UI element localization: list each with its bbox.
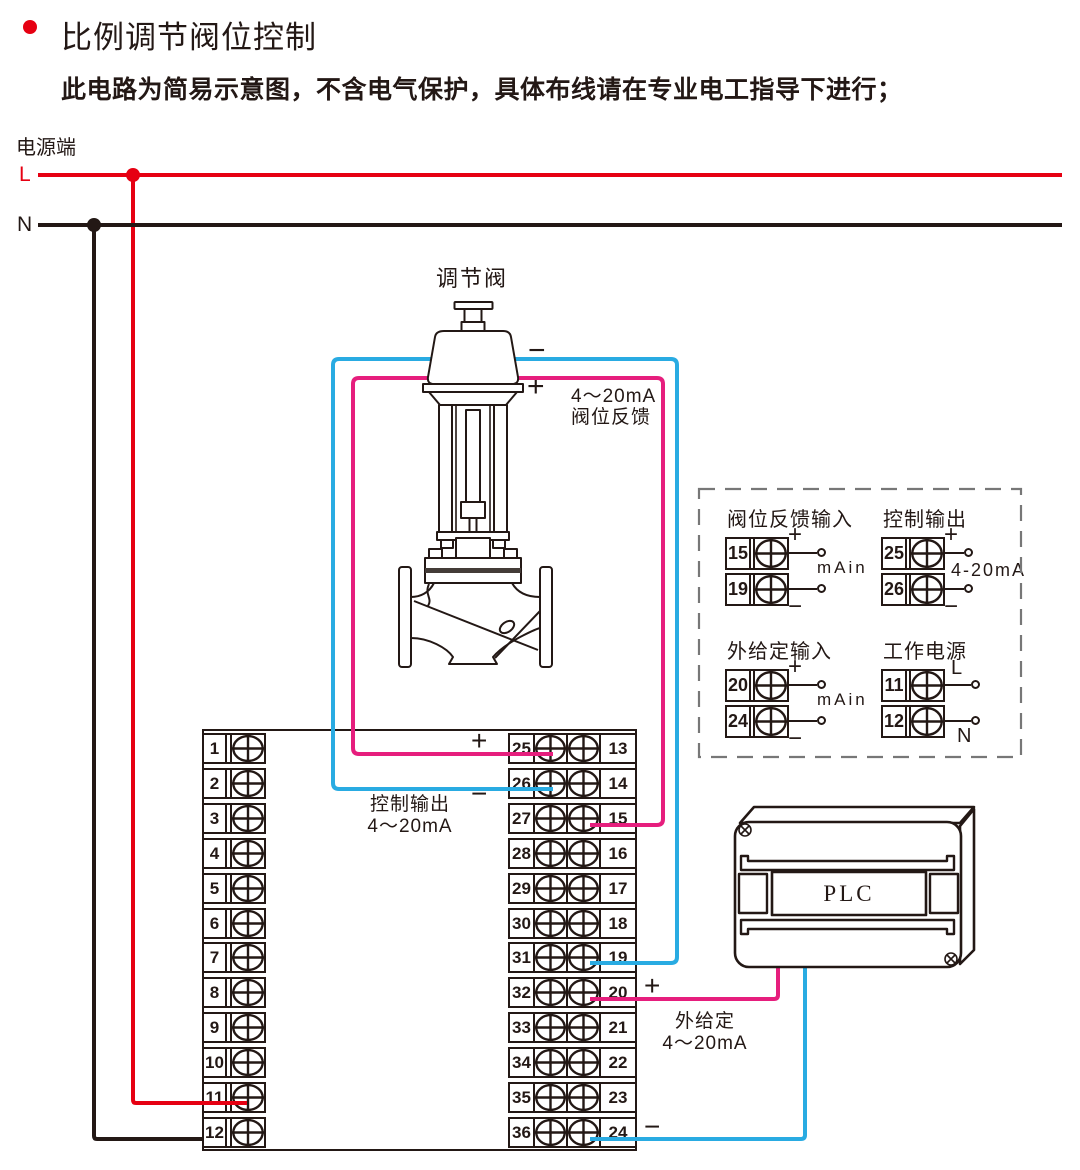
legend-terminal-row: 19 [725, 573, 789, 606]
terminal-number: 15 [601, 805, 635, 832]
legend-terminal-row: 25 [881, 537, 945, 570]
middle-terminal-row: 2513 [508, 733, 637, 764]
screw-terminal-icon [535, 805, 566, 832]
terminal-number: 36 [510, 1119, 535, 1146]
live-junction-dot [126, 168, 140, 182]
valve-feedback-text: 阀位反馈 [571, 407, 656, 428]
legend-sign: − [944, 595, 958, 619]
legend-range-label: mAin [817, 558, 868, 578]
left-terminal-row: 8 [202, 977, 266, 1008]
screw-terminal [568, 735, 601, 762]
valve-plus-sign: + [527, 372, 545, 402]
terminal-number: 25 [510, 735, 535, 762]
screw-icon [945, 953, 957, 965]
left-terminal-row: 6 [202, 908, 266, 939]
legend-terminal-row: 12 [881, 705, 945, 738]
screw-terminal [232, 875, 264, 902]
valve-flange-icon [399, 567, 411, 667]
screw-terminal [535, 840, 568, 867]
screw-terminal [568, 1049, 601, 1076]
terminal-number: 28 [510, 840, 535, 867]
terminal-number: 12 [883, 707, 907, 736]
terminal-number: 26 [883, 575, 907, 604]
bullet-icon [23, 20, 37, 34]
terminal-number: 9 [204, 1014, 227, 1041]
terminal-number: 22 [601, 1049, 635, 1076]
legend-terminal-row: 20 [725, 669, 789, 702]
screw-terminal-icon [535, 840, 566, 867]
open-terminal-circle [817, 584, 826, 593]
left-terminal-row: 5 [202, 873, 266, 904]
screw-terminal [232, 1084, 264, 1111]
screw-terminal-icon [535, 1014, 566, 1041]
open-terminal-circle [817, 680, 826, 689]
screw-terminal-icon [535, 944, 566, 971]
middle-terminal-row: 3624 [508, 1117, 637, 1148]
terminal-number: 20 [727, 671, 751, 700]
open-terminal-circle [971, 680, 980, 689]
middle-terminal-row: 3523 [508, 1082, 637, 1113]
left-terminal-row: 9 [202, 1012, 266, 1043]
terminal-number: 29 [510, 875, 535, 902]
screw-terminal-icon [568, 944, 599, 971]
screw-terminal [535, 944, 568, 971]
screw-terminal-icon [568, 770, 599, 797]
open-terminal-circle [817, 716, 826, 725]
legend-wire [789, 684, 817, 686]
power-terminal-label: 电源端 [16, 131, 76, 160]
screw-terminal [535, 875, 568, 902]
screw-terminal [911, 671, 943, 700]
screw-terminal-icon [755, 707, 787, 736]
legend-wire [945, 552, 964, 554]
terminal-number: 32 [510, 979, 535, 1006]
terminal-number: 34 [510, 1049, 535, 1076]
legend-wire [945, 588, 964, 590]
terminal-number: 24 [727, 707, 751, 736]
middle-terminal-row: 3220 [508, 977, 637, 1008]
screw-terminal [232, 840, 264, 867]
terminal-number: 16 [601, 840, 635, 867]
terminal-number: 12 [204, 1119, 227, 1146]
screw-terminal-icon [232, 1014, 264, 1041]
terminal-number: 27 [510, 805, 535, 832]
screw-terminal [568, 875, 601, 902]
screw-terminal-icon [535, 735, 566, 762]
screw-terminal-icon [232, 875, 264, 902]
screw-terminal-icon [911, 539, 943, 568]
screw-terminal [232, 944, 264, 971]
screw-terminal [568, 910, 601, 937]
screw-terminal-icon [232, 1084, 264, 1111]
screw-terminal-icon [232, 840, 264, 867]
screw-icon [739, 824, 751, 836]
screw-terminal-icon [535, 979, 566, 1006]
terminal-number: 2 [204, 770, 227, 797]
valve-actuator-icon [428, 331, 518, 384]
legend-sign: L [951, 658, 962, 678]
middle-terminal-row: 3018 [508, 908, 637, 939]
screw-terminal [232, 1119, 264, 1146]
external-setpoint-minus-sign: − [644, 1113, 660, 1141]
terminal-number: 19 [601, 944, 635, 971]
terminal-number: 17 [601, 875, 635, 902]
neutral-line-label: N [17, 213, 32, 237]
legend-wire [789, 588, 817, 590]
middle-terminal-row: 2614 [508, 768, 637, 799]
valve-body-icon [411, 583, 540, 664]
legend-sign: + [788, 655, 802, 679]
screw-terminal-icon [232, 805, 264, 832]
screw-terminal-icon [755, 539, 787, 568]
screw-terminal-icon [232, 1049, 264, 1076]
terminal-number: 10 [204, 1049, 227, 1076]
legend-sign: + [944, 523, 958, 547]
screw-terminal [535, 735, 568, 762]
screw-terminal [535, 1119, 568, 1146]
legend-group-title: 外给定输入 [727, 635, 832, 664]
neutral-drop-wire [94, 225, 204, 1139]
screw-terminal-icon [568, 840, 599, 867]
screw-terminal-icon [535, 875, 566, 902]
legend-range-label: 4-20mA [951, 560, 1026, 581]
terminal-number: 11 [204, 1084, 227, 1111]
open-terminal-circle [964, 584, 973, 593]
legend-sign: + [788, 523, 802, 547]
legend-terminal-row: 11 [881, 669, 945, 702]
page-title: 比例调节阀位控制 [61, 12, 317, 57]
screw-terminal [568, 944, 601, 971]
terminal-number: 35 [510, 1084, 535, 1111]
valve-minus-sign: − [528, 336, 546, 366]
middle-terminal-row: 2816 [508, 838, 637, 869]
screw-terminal-icon [568, 979, 599, 1006]
screw-terminal-icon [535, 1119, 566, 1146]
middle-terminal-row: 2917 [508, 873, 637, 904]
screw-terminal [568, 805, 601, 832]
control-output-range: 4～20mA [360, 816, 460, 838]
screw-terminal [232, 910, 264, 937]
external-setpoint-range: 4～20mA [655, 1033, 755, 1055]
external-setpoint-plus-sign: + [644, 972, 660, 1000]
screw-terminal [232, 735, 264, 762]
page-subtitle: 此电路为简易示意图，不含电气保护，具体布线请在专业电工指导下进行； [61, 70, 903, 106]
middle-terminal-row: 3422 [508, 1047, 637, 1078]
screw-terminal-icon [535, 910, 566, 937]
valve-feedback-label: 4～20mA 阀位反馈 [571, 386, 656, 428]
screw-terminal-icon [568, 875, 599, 902]
screw-terminal-icon [232, 770, 264, 797]
screw-terminal-icon [911, 707, 943, 736]
screw-terminal [755, 539, 787, 568]
middle-terminal-row: 2715 [508, 803, 637, 834]
screw-terminal-icon [535, 1049, 566, 1076]
terminal-number: 18 [601, 910, 635, 937]
screw-terminal [911, 707, 943, 736]
screw-terminal [535, 770, 568, 797]
left-terminal-row: 12 [202, 1117, 266, 1148]
control-output-label: 控制输出 4～20mA [360, 794, 460, 838]
left-terminal-row: 3 [202, 803, 266, 834]
legend-wire [789, 552, 817, 554]
left-terminal-row: 7 [202, 942, 266, 973]
screw-terminal [755, 707, 787, 736]
screw-terminal [232, 979, 264, 1006]
control-output-plus-sign: + [471, 727, 487, 755]
screw-terminal [535, 979, 568, 1006]
screw-terminal-icon [568, 1119, 599, 1146]
terminal-number: 31 [510, 944, 535, 971]
screw-terminal-icon [568, 805, 599, 832]
screw-terminal-icon [755, 575, 787, 604]
valve-handwheel-icon [455, 302, 493, 309]
terminal-number: 24 [601, 1119, 635, 1146]
external-setpoint-label: 外给定 4～20mA [655, 1011, 755, 1055]
screw-terminal-icon [911, 671, 943, 700]
control-output-text: 控制输出 [360, 794, 460, 816]
terminal-number: 26 [510, 770, 535, 797]
terminal-number: 30 [510, 910, 535, 937]
screw-terminal-icon [755, 671, 787, 700]
legend-sign: − [788, 595, 802, 619]
screw-terminal-icon [535, 1084, 566, 1111]
screw-terminal-icon [911, 575, 943, 604]
external-setpoint-text: 外给定 [655, 1011, 755, 1033]
terminal-number: 7 [204, 944, 227, 971]
valve-label: 调节阀 [436, 261, 508, 293]
valve-flange-icon [540, 567, 552, 667]
screw-terminal [911, 575, 943, 604]
legend-sign: N [957, 726, 971, 746]
screw-terminal [568, 770, 601, 797]
screw-terminal [568, 1119, 601, 1146]
live-line-label: L [19, 163, 31, 187]
screw-terminal-icon [232, 944, 264, 971]
terminal-number: 6 [204, 910, 227, 937]
terminal-number: 13 [601, 735, 635, 762]
legend-terminal-row: 26 [881, 573, 945, 606]
terminal-number: 15 [727, 539, 751, 568]
terminal-number: 20 [601, 979, 635, 1006]
legend-wire [789, 720, 817, 722]
open-terminal-circle [817, 548, 826, 557]
screw-terminal [568, 1014, 601, 1041]
plc-label: PLC [772, 872, 926, 915]
left-terminal-row: 1 [202, 733, 266, 764]
screw-terminal [911, 539, 943, 568]
legend-wire [945, 720, 971, 722]
terminal-number: 23 [601, 1084, 635, 1111]
legend-wire [945, 684, 971, 686]
screw-terminal-icon [568, 1049, 599, 1076]
screw-terminal-icon [568, 735, 599, 762]
legend-range-label: mAin [817, 690, 868, 710]
valve-feedback-range: 4～20mA [571, 386, 656, 407]
control-output-minus-sign: − [471, 780, 487, 808]
screw-terminal [568, 1084, 601, 1111]
screw-terminal [568, 979, 601, 1006]
legend-terminal-row: 15 [725, 537, 789, 570]
terminal-number: 4 [204, 840, 227, 867]
screw-terminal [755, 671, 787, 700]
open-terminal-circle [964, 548, 973, 557]
screw-terminal-icon [232, 910, 264, 937]
terminal-number: 33 [510, 1014, 535, 1041]
left-terminal-row: 11 [202, 1082, 266, 1113]
screw-terminal [232, 770, 264, 797]
terminal-number: 25 [883, 539, 907, 568]
left-terminal-row: 2 [202, 768, 266, 799]
open-terminal-circle [971, 716, 980, 725]
screw-terminal-icon [568, 1084, 599, 1111]
legend-terminal-row: 24 [725, 705, 789, 738]
screw-terminal [535, 1084, 568, 1111]
screw-terminal [755, 575, 787, 604]
screw-terminal-icon [232, 979, 264, 1006]
screw-terminal [535, 1049, 568, 1076]
left-terminal-row: 4 [202, 838, 266, 869]
screw-terminal [232, 1014, 264, 1041]
screw-terminal-icon [568, 1014, 599, 1041]
screw-terminal-icon [535, 770, 566, 797]
terminal-number: 11 [883, 671, 907, 700]
screw-terminal-icon [232, 735, 264, 762]
terminal-number: 3 [204, 805, 227, 832]
terminal-number: 8 [204, 979, 227, 1006]
terminal-number: 5 [204, 875, 227, 902]
screw-terminal [232, 1049, 264, 1076]
screw-terminal [535, 1014, 568, 1041]
screw-terminal-icon [232, 1119, 264, 1146]
screw-terminal [535, 910, 568, 937]
middle-terminal-row: 3119 [508, 942, 637, 973]
terminal-number: 21 [601, 1014, 635, 1041]
left-terminal-row: 10 [202, 1047, 266, 1078]
legend-sign: − [788, 727, 802, 751]
screw-terminal [535, 805, 568, 832]
terminal-number: 1 [204, 735, 227, 762]
terminal-number: 14 [601, 770, 635, 797]
neutral-junction-dot [87, 218, 101, 232]
terminal-number: 19 [727, 575, 751, 604]
screw-terminal-icon [568, 910, 599, 937]
wiring-diagram-page: 比例调节阀位控制 此电路为简易示意图，不含电气保护，具体布线请在专业电工指导下进… [0, 0, 1080, 1170]
screw-terminal [568, 840, 601, 867]
middle-terminal-row: 3321 [508, 1012, 637, 1043]
screw-terminal [232, 805, 264, 832]
